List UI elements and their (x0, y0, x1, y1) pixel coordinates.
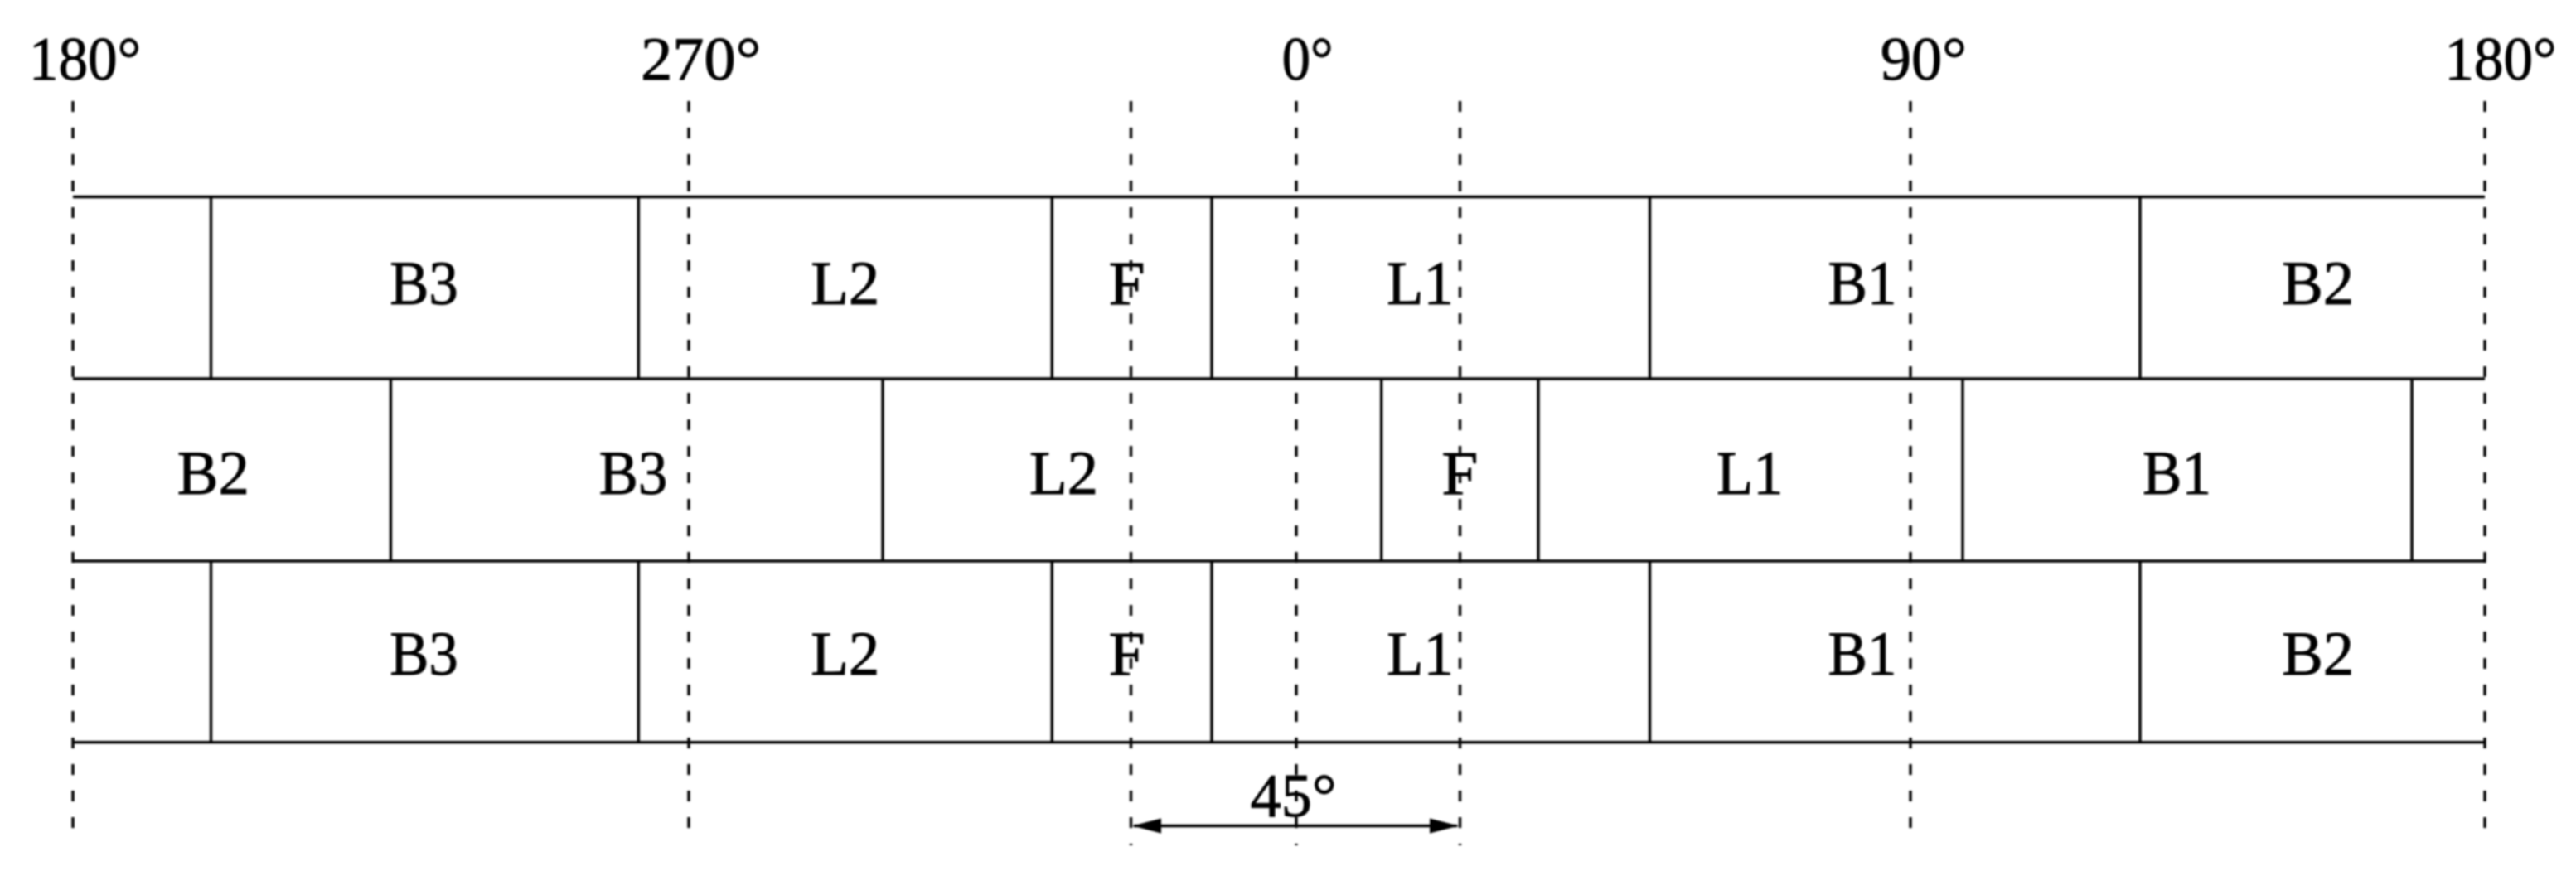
svg-text:F: F (1109, 249, 1145, 318)
svg-text:L1: L1 (1387, 620, 1454, 689)
svg-text:B1: B1 (1828, 249, 1897, 318)
svg-text:B2: B2 (2282, 249, 2354, 318)
svg-text:270°: 270° (641, 26, 761, 94)
svg-text:B1: B1 (1828, 620, 1897, 689)
svg-text:B1: B1 (2143, 439, 2211, 508)
svg-text:B3: B3 (599, 439, 668, 508)
svg-text:45°: 45° (1251, 762, 1337, 830)
svg-text:180°: 180° (2444, 26, 2556, 94)
svg-text:B3: B3 (390, 249, 458, 318)
svg-text:B2: B2 (177, 439, 249, 508)
svg-text:L1: L1 (1387, 249, 1454, 318)
svg-text:F: F (1109, 620, 1145, 689)
svg-text:B2: B2 (2282, 620, 2354, 689)
svg-text:B3: B3 (390, 620, 458, 689)
svg-text:90°: 90° (1881, 26, 1967, 94)
svg-text:180°: 180° (29, 26, 141, 94)
svg-text:L2: L2 (811, 249, 879, 318)
svg-text:L2: L2 (1029, 439, 1098, 508)
svg-text:L2: L2 (811, 620, 879, 689)
svg-text:F: F (1441, 439, 1478, 508)
svg-text:0°: 0° (1282, 26, 1334, 94)
svg-text:L1: L1 (1717, 439, 1784, 508)
